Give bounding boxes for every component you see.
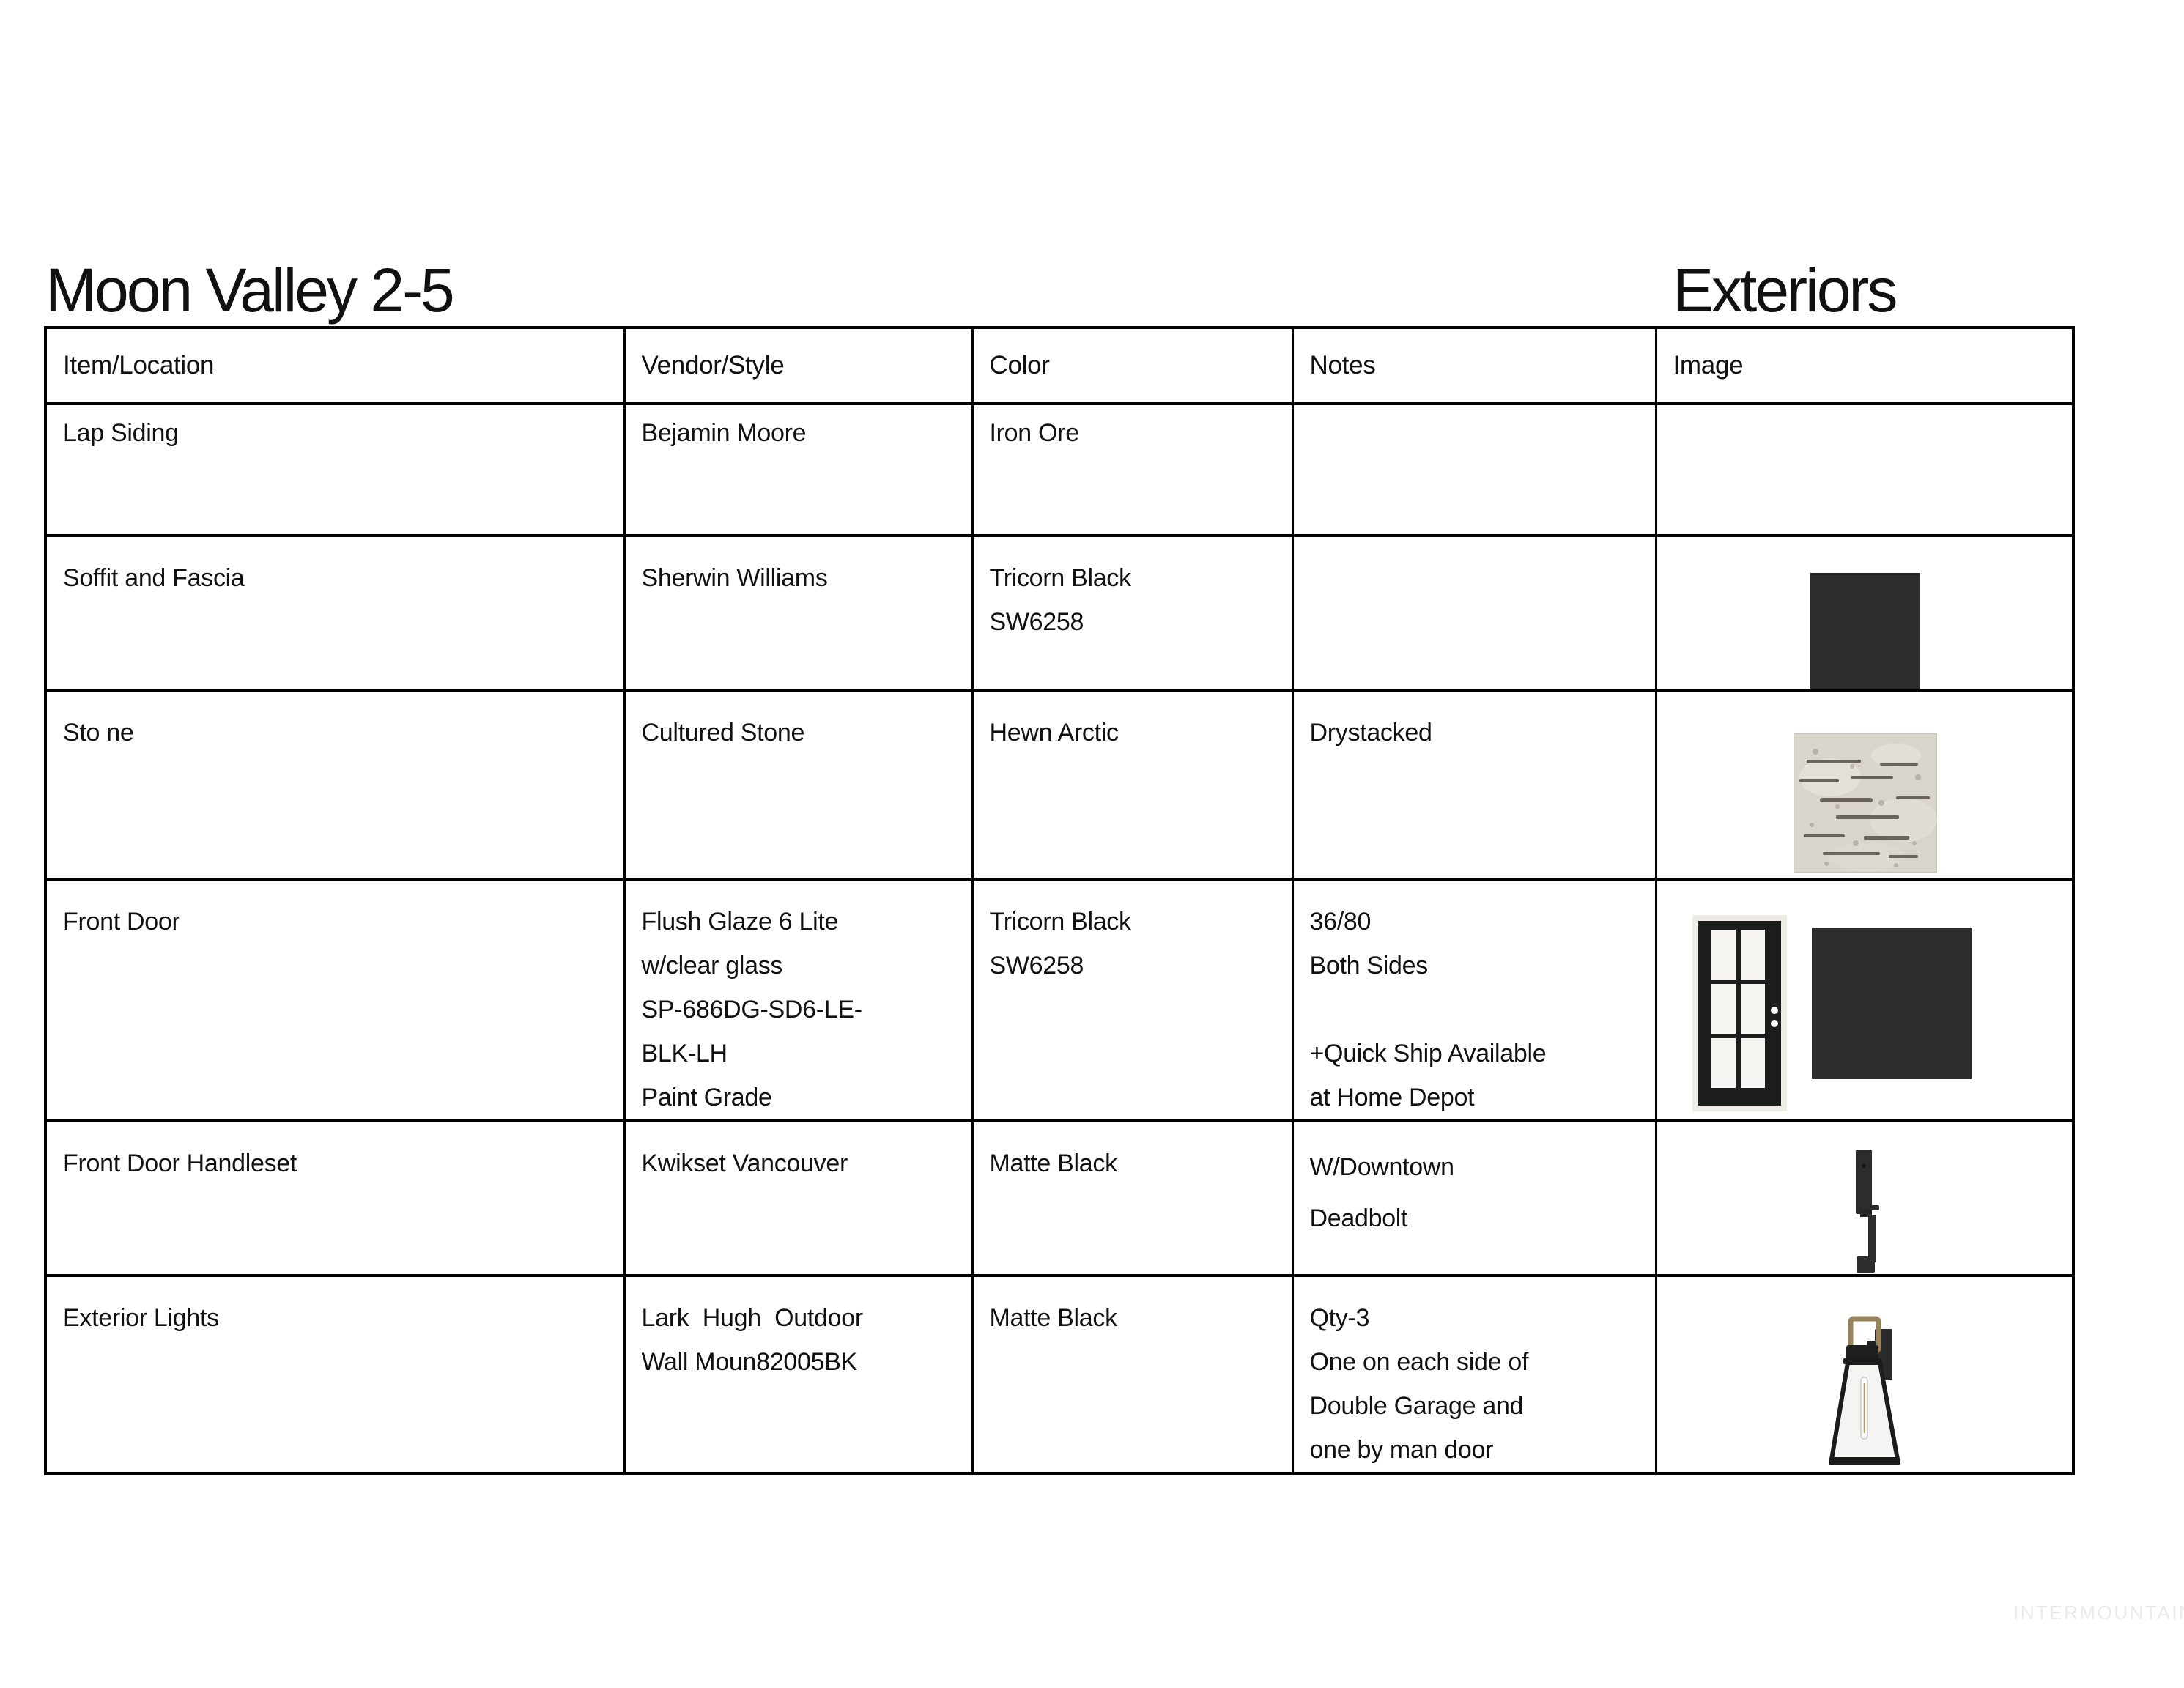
- color-cell: Hewn Arctic: [972, 690, 1292, 879]
- item-cell: Sto ne: [45, 690, 624, 879]
- vendor-cell: Kwikset Vancouver: [624, 1121, 972, 1276]
- col-header-vendor-style: Vendor/Style: [624, 327, 972, 404]
- hewn-arctic-stone-sample-image: [1794, 733, 1937, 873]
- color-cell: Matte Black: [972, 1276, 1292, 1473]
- tricorn-black-paint-swatch-image: [1810, 573, 1920, 689]
- color-text: Tricorn Black SW6258: [990, 900, 1277, 988]
- image-cell: [1656, 1121, 2073, 1276]
- image-cell: [1656, 1276, 2073, 1473]
- notes-text: W/Downtown Deadbolt: [1310, 1141, 1640, 1244]
- header-row: Item/Location Vendor/Style Color Notes I…: [45, 327, 2073, 404]
- vendor-cell: Flush Glaze 6 Lite w/clear glass SP-686D…: [624, 879, 972, 1121]
- item-text: Front Door: [63, 900, 609, 944]
- notes-cell: [1292, 404, 1656, 536]
- row-stone: Sto ne Cultured Stone Hewn Arctic Drysta…: [45, 690, 2073, 879]
- exterior-spec-sheet-page: Moon Valley 2-5 Exteriors Item/Location …: [0, 0, 2184, 1688]
- notes-text: Drystacked: [1310, 711, 1640, 755]
- row-front-door-handleset: Front Door Handleset Kwikset Vancouver M…: [45, 1121, 2073, 1276]
- notes-cell: 36/80 Both Sides +Quick Ship Available a…: [1292, 879, 1656, 1121]
- vendor-cell: Lark Hugh Outdoor Wall Moun82005BK: [624, 1276, 972, 1473]
- image-cell: [1656, 690, 2073, 879]
- outdoor-wall-lantern-image: [1829, 1314, 1902, 1472]
- color-text: Matte Black: [990, 1141, 1277, 1185]
- vendor-text: Cultured Stone: [642, 711, 957, 755]
- vendor-cell: Bejamin Moore: [624, 404, 972, 536]
- image-cell: [1656, 536, 2073, 690]
- notes-cell: Drystacked: [1292, 690, 1656, 879]
- exteriors-spec-table: Item/Location Vendor/Style Color Notes I…: [44, 326, 2075, 1475]
- row-soffit-and-fascia: Soffit and Fascia Sherwin Williams Trico…: [45, 536, 2073, 690]
- row-lap-siding: Lap Siding Bejamin Moore Iron Ore: [45, 404, 2073, 536]
- notes-text: 36/80 Both Sides +Quick Ship Available a…: [1310, 900, 1640, 1119]
- col-header-notes: Notes: [1292, 327, 1656, 404]
- color-cell: Tricorn Black SW6258: [972, 879, 1292, 1121]
- vendor-cell: Cultured Stone: [624, 690, 972, 879]
- matte-black-handleset-image: [1848, 1148, 1881, 1274]
- notes-cell: Qty-3 One on each side of Double Garage …: [1292, 1276, 1656, 1473]
- door-deadbolt-bore-dot: [1771, 1020, 1778, 1027]
- item-text: Lap Siding: [63, 411, 609, 455]
- vendor-text: Flush Glaze 6 Lite w/clear glass SP-686D…: [642, 900, 957, 1119]
- vendor-text: Lark Hugh Outdoor Wall Moun82005BK: [642, 1296, 957, 1384]
- image-wrapper: [1673, 556, 2058, 689]
- row-exterior-lights: Exterior Lights Lark Hugh Outdoor Wall M…: [45, 1276, 2073, 1473]
- notes-cell: W/Downtown Deadbolt: [1292, 1121, 1656, 1276]
- item-cell: Front Door Handleset: [45, 1121, 624, 1276]
- image-cell: [1656, 879, 2073, 1121]
- color-text: Iron Ore: [990, 411, 1277, 455]
- tricorn-black-paint-swatch-image: [1812, 928, 1972, 1079]
- row-front-door: Front Door Flush Glaze 6 Lite w/clear gl…: [45, 879, 2073, 1121]
- item-text: Soffit and Fascia: [63, 556, 609, 600]
- item-cell: Front Door: [45, 879, 624, 1121]
- item-text: Exterior Lights: [63, 1296, 609, 1340]
- color-text: Tricorn Black SW6258: [990, 556, 1277, 644]
- image-wrapper: [1673, 733, 2058, 873]
- item-cell: Soffit and Fascia: [45, 536, 624, 690]
- item-text: Sto ne: [63, 711, 609, 755]
- notes-cell: [1292, 536, 1656, 690]
- item-cell: Lap Siding: [45, 404, 624, 536]
- vendor-text: Kwikset Vancouver: [642, 1141, 957, 1185]
- col-header-item-location: Item/Location: [45, 327, 624, 404]
- color-text: Hewn Arctic: [990, 711, 1277, 755]
- vendor-text: Sherwin Williams: [642, 556, 957, 600]
- image-cell-empty: [1656, 404, 2073, 536]
- color-cell: Matte Black: [972, 1121, 1292, 1276]
- col-header-image: Image: [1656, 327, 2073, 404]
- color-text: Matte Black: [990, 1296, 1277, 1340]
- page-subtitle: Exteriors: [1673, 258, 1895, 322]
- item-text: Front Door Handleset: [63, 1141, 609, 1185]
- color-cell: Tricorn Black SW6258: [972, 536, 1292, 690]
- vendor-cell: Sherwin Williams: [624, 536, 972, 690]
- item-cell: Exterior Lights: [45, 1276, 624, 1473]
- image-wrapper: [1673, 1296, 2058, 1472]
- color-cell: Iron Ore: [972, 404, 1292, 536]
- watermark: INTERMOUNTAIN: [2013, 1602, 2184, 1624]
- image-wrapper: [1656, 900, 2024, 1111]
- col-header-color: Color: [972, 327, 1292, 404]
- page-title: Moon Valley 2-5: [45, 258, 453, 322]
- door-handle-bore-dot: [1771, 1007, 1778, 1014]
- six-lite-black-front-door-image: [1692, 915, 1787, 1111]
- vendor-text: Bejamin Moore: [642, 411, 957, 455]
- image-wrapper: [1673, 1141, 2058, 1274]
- notes-text: Qty-3 One on each side of Double Garage …: [1310, 1296, 1640, 1472]
